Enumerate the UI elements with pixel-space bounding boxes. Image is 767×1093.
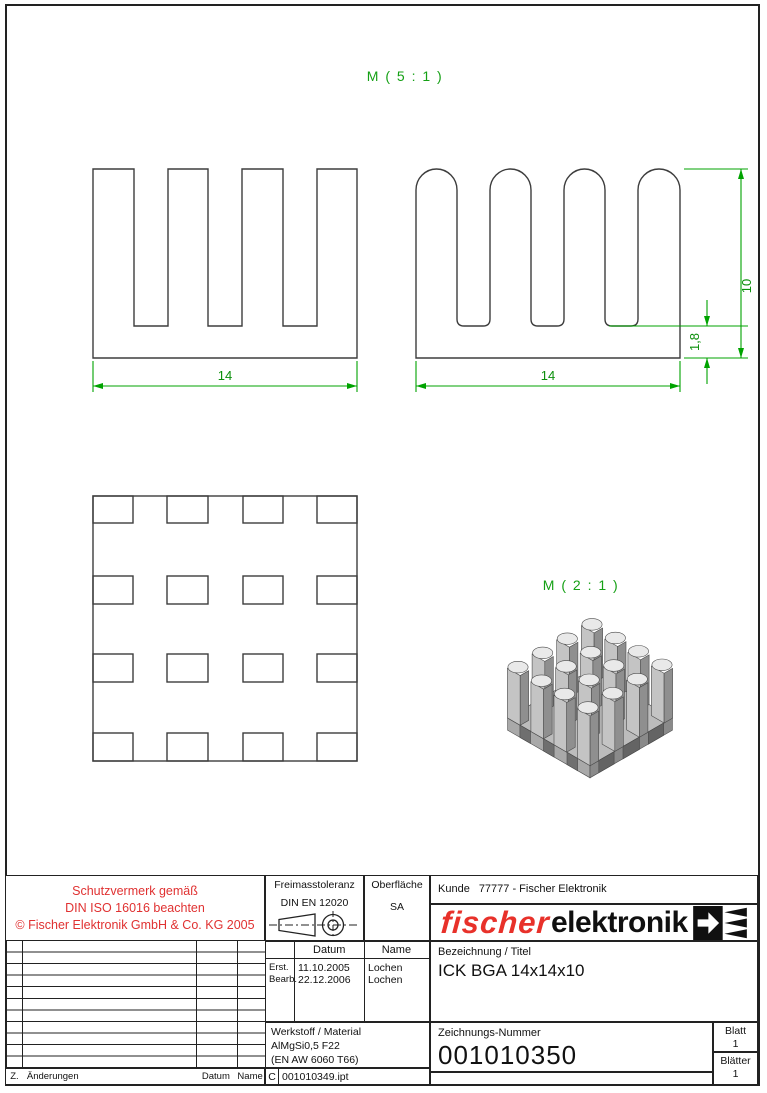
drawing-number-label: Zeichnungs-Nummer [438, 1027, 712, 1039]
surface-label: Oberfläche [365, 879, 429, 891]
material-line1: AlMgSi0,5 F22 [271, 1039, 429, 1053]
revision-col-date: Datum [196, 1071, 237, 1082]
sheets-label: Blätter [714, 1055, 757, 1068]
sheets-box: Blätter 1 [713, 1052, 758, 1085]
company-logo: fischer elektronik [430, 904, 758, 941]
tolerance-standard: DIN EN 12020 [266, 897, 363, 909]
sheet-value: 1 [714, 1038, 757, 1051]
dimension-arrowheads [93, 169, 744, 389]
scale-label-main: M ( 5 : 1 ) [367, 68, 443, 84]
file-letter: C [266, 1069, 279, 1084]
dimension-texts: 14 14 10 1,8 [218, 279, 754, 383]
revision-col-z: Z. [6, 1071, 23, 1082]
date-header: Datum [295, 944, 364, 956]
sheet-box: Blatt 1 [713, 1022, 758, 1052]
revision-col-changes: Änderungen [23, 1071, 196, 1082]
revision-table-divider-3 [237, 941, 238, 1085]
edited-name: Lochen [368, 974, 402, 986]
revision-footer: Z. Änderungen Datum Name [5, 1068, 265, 1085]
tolerance-box: Freimasstoleranz DIN EN 12020 [265, 875, 364, 941]
designation-box: Bezeichnung / Titel ICK BGA 14x14x10 [430, 941, 758, 1022]
protection-note-line2: DIN ISO 16016 beachten [6, 900, 264, 917]
date-block-divider-2 [364, 941, 365, 1022]
revision-table-divider-2 [196, 941, 197, 1085]
drawing-sheet: M ( 5 : 1 ) M ( 2 : 1 ) [0, 0, 767, 1093]
material-line2: (EN AW 6060 T66) [271, 1053, 429, 1067]
revision-table [5, 941, 265, 1068]
revision-col-name: Name [236, 1071, 264, 1082]
date-block-divider-1 [294, 941, 295, 1022]
drawing-number-box: Zeichnungs-Nummer 001010350 [430, 1022, 713, 1072]
customer-value: 77777 - Fischer Elektronik [479, 883, 607, 895]
file-name: 001010349.ipt [279, 1071, 349, 1083]
created-name: Lochen [368, 962, 402, 974]
side-view-profile [416, 169, 680, 358]
surface-box: Oberfläche SA [364, 875, 430, 941]
customer-row: Kunde77777 - Fischer Elektronik [430, 875, 758, 904]
logo-arrow-icon [693, 906, 747, 940]
top-view [93, 496, 357, 761]
date-row-names: Lochen Lochen [368, 962, 402, 986]
dim-height: 10 [739, 279, 754, 293]
protection-note-line1: Schutzvermerk gemäß [6, 883, 264, 900]
dim-base-thickness: 1,8 [687, 333, 702, 351]
customer-label: Kunde [438, 883, 470, 895]
logo-elektronik-text: elektronik [551, 906, 688, 940]
file-row: C 001010349.ipt [265, 1068, 430, 1085]
heatsink-3d-view [507, 619, 672, 778]
dim-side-width: 14 [541, 368, 555, 383]
date-row-dates: 11.10.2005 22.12.2006 [298, 962, 351, 986]
protection-note-line3: © Fischer Elektronik GmbH & Co. KG 2005 [6, 917, 264, 934]
date-name-block: Datum Name Erst. Bearb. 11.10.2005 22.12… [265, 941, 430, 1022]
dim-front-width: 14 [218, 368, 232, 383]
material-box: Werkstoff / Material AlMgSi0,5 F22 (EN A… [265, 1022, 430, 1068]
designation-label: Bezeichnung / Titel [438, 946, 757, 958]
edited-date: 22.12.2006 [298, 974, 351, 986]
created-date: 11.10.2005 [298, 962, 351, 974]
sheet-label: Blatt [714, 1025, 757, 1038]
drawing-number-value: 001010350 [438, 1040, 712, 1071]
projection-symbol-icon [267, 910, 362, 940]
material-label: Werkstoff / Material [271, 1025, 429, 1039]
revision-table-divider-1 [22, 941, 23, 1085]
date-row-labels: Erst. Bearb. [269, 962, 297, 986]
tolerance-label: Freimasstoleranz [266, 879, 363, 891]
designation-value: ICK BGA 14x14x10 [438, 961, 757, 981]
created-label: Erst. [269, 962, 297, 974]
logo-fischer-text: fischer [440, 905, 551, 941]
scale-label-iso: M ( 2 : 1 ) [543, 577, 619, 593]
protection-note: Schutzvermerk gemäß DIN ISO 16016 beacht… [5, 875, 265, 941]
name-header: Name [364, 944, 429, 956]
surface-value: SA [365, 901, 429, 913]
front-view-profile [93, 169, 357, 358]
edited-label: Bearb. [269, 974, 297, 986]
drawing-number-empty-row [430, 1072, 713, 1085]
sheets-value: 1 [714, 1068, 757, 1081]
